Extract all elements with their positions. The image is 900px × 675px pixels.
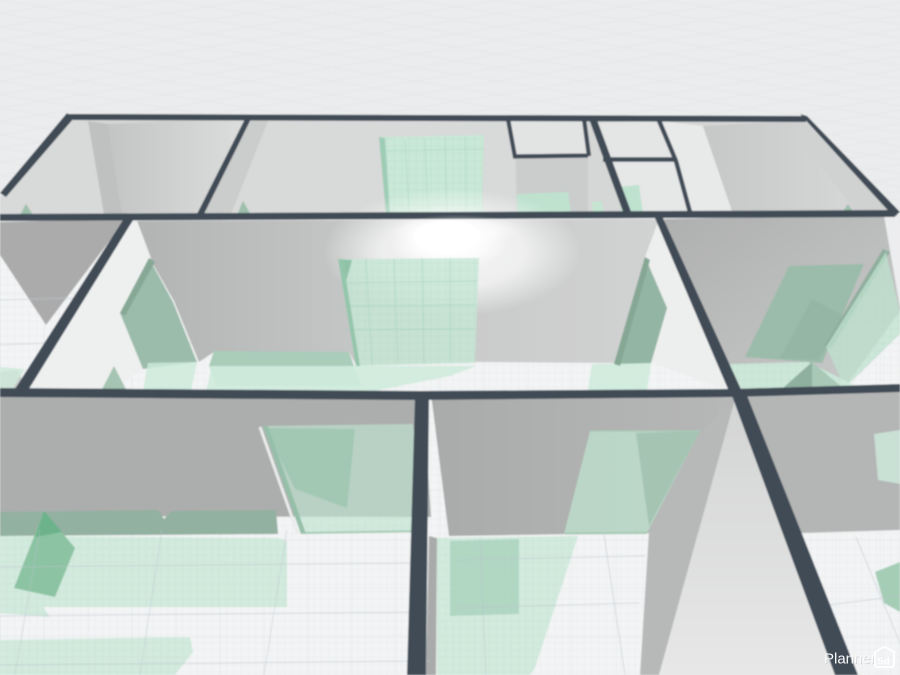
svg-text:5d: 5d (878, 656, 890, 668)
svg-text:Planner: Planner (824, 650, 876, 667)
